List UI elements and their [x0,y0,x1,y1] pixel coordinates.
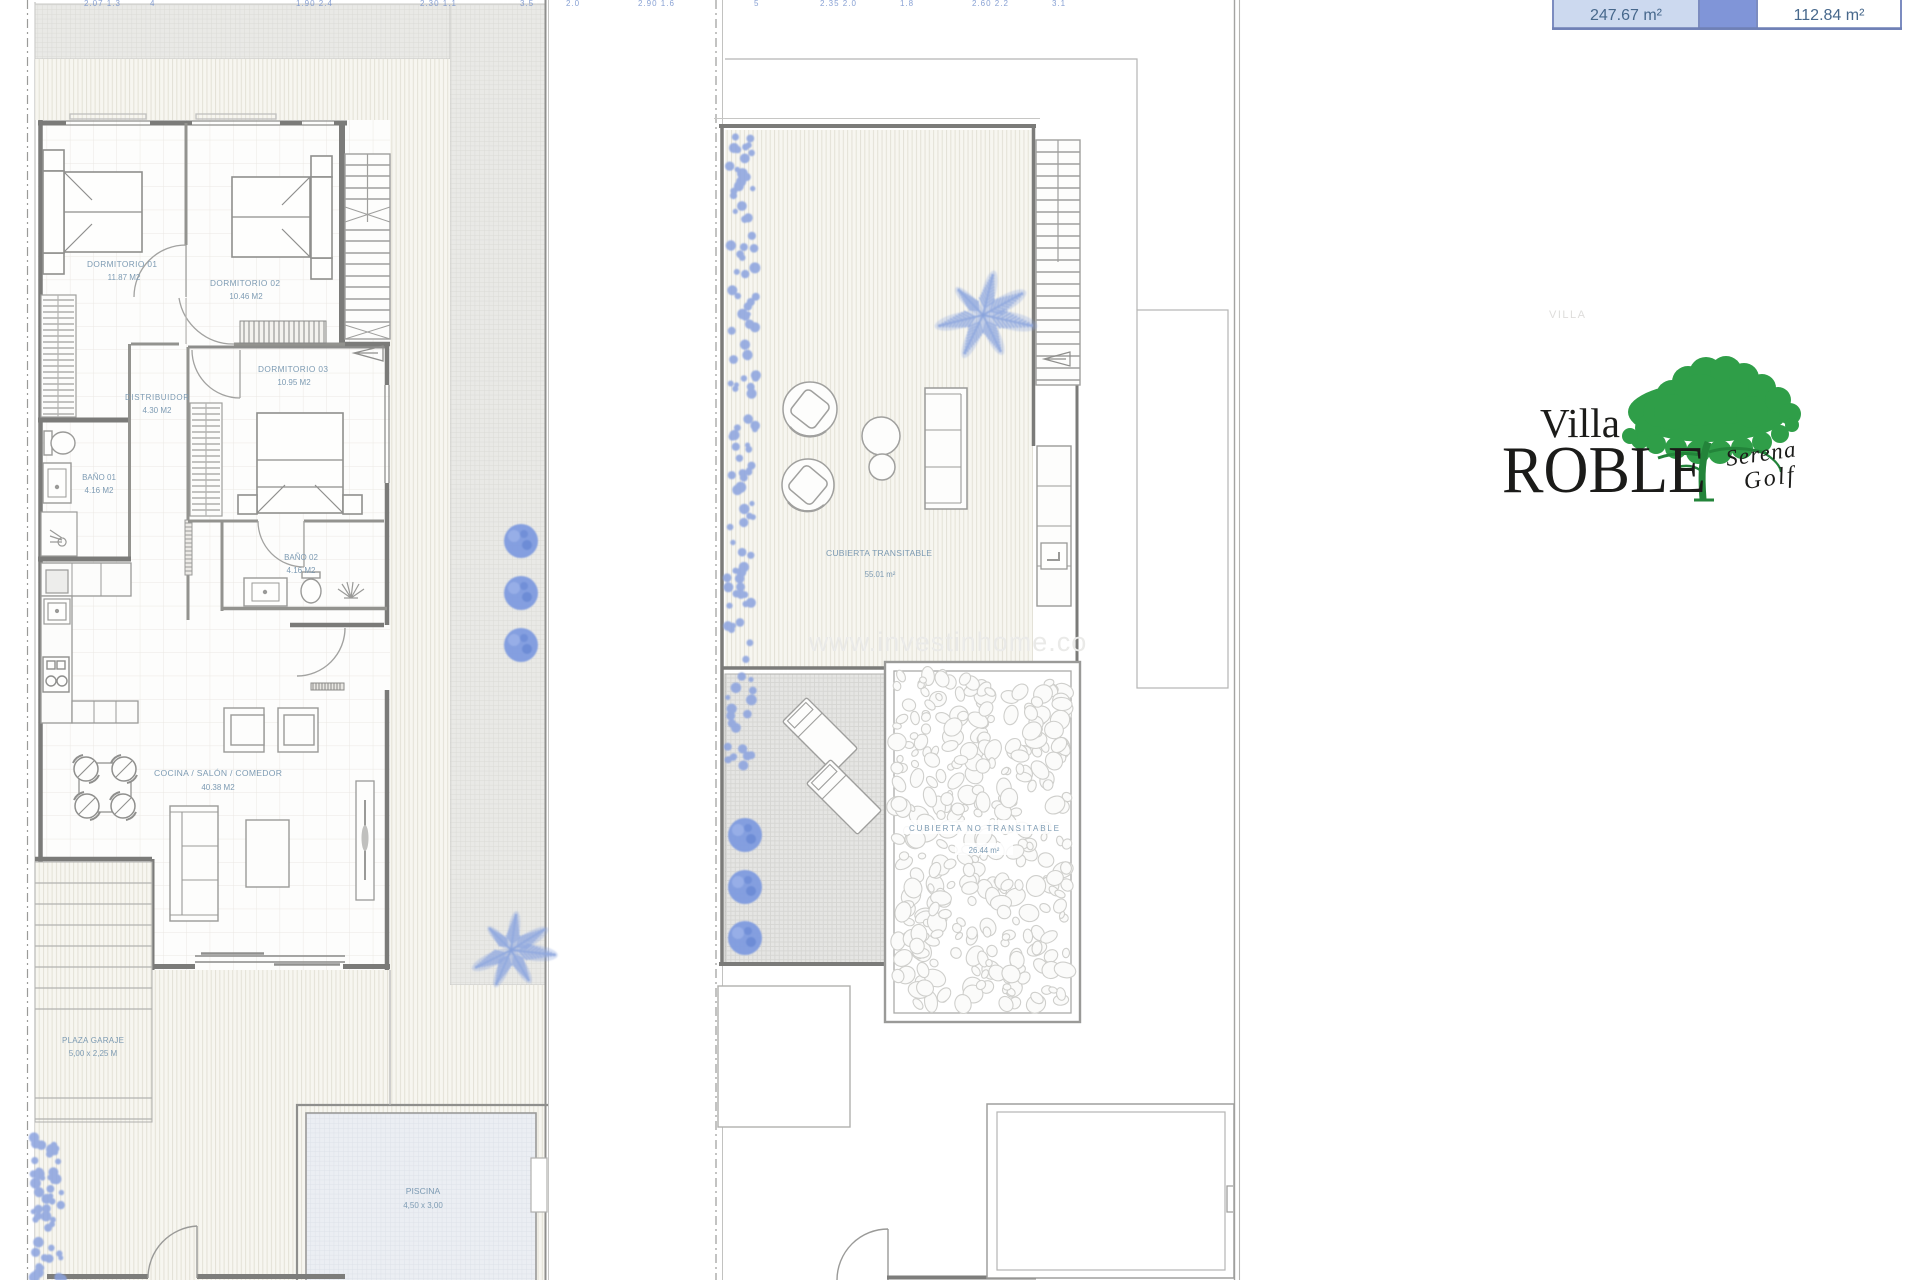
svg-text:1.8: 1.8 [900,0,914,8]
svg-text:2.30 1.1: 2.30 1.1 [420,0,457,8]
svg-text:3.5: 3.5 [520,0,534,8]
svg-text:1.90 2.4: 1.90 2.4 [296,0,333,8]
svg-text:40.38 M2: 40.38 M2 [201,783,235,792]
svg-text:2.90 1.6: 2.90 1.6 [638,0,675,8]
svg-text:11.87 M2: 11.87 M2 [108,273,141,282]
svg-text:2.0: 2.0 [566,0,580,8]
svg-text:DORMITORIO 02: DORMITORIO 02 [210,278,280,288]
svg-text:10.95 M2: 10.95 M2 [277,378,311,387]
svg-text:112.84 m²: 112.84 m² [1794,7,1866,24]
svg-text:DORMITORIO 03: DORMITORIO 03 [258,364,328,374]
svg-text:CUBIERTA NO TRANSITABLE: CUBIERTA NO TRANSITABLE [909,824,1059,833]
svg-text:2.35 2.0: 2.35 2.0 [820,0,857,8]
svg-text:26.44 m²: 26.44 m² [969,846,1000,855]
svg-text:ROBLE: ROBLE [1502,433,1706,507]
svg-text:4.16 M2: 4.16 M2 [287,566,316,575]
svg-text:10.46 M2: 10.46 M2 [229,292,263,301]
svg-text:4,50 x 3,00: 4,50 x 3,00 [403,1201,443,1210]
svg-text:4: 4 [150,0,155,8]
svg-text:247.67 m²: 247.67 m² [1590,7,1663,24]
svg-text:3.1: 3.1 [1052,0,1066,8]
svg-text:55.01 m²: 55.01 m² [865,570,896,579]
svg-text:COCINA / SALÓN / COMEDOR: COCINA / SALÓN / COMEDOR [154,768,282,778]
svg-text:BAÑO 01: BAÑO 01 [82,473,116,482]
svg-text:2.07 1.3: 2.07 1.3 [84,0,121,8]
svg-text:www.investinhome.co: www.investinhome.co [808,627,1088,657]
svg-text:BAÑO 02: BAÑO 02 [284,553,318,562]
svg-text:DISTRIBUIDOR: DISTRIBUIDOR [125,393,189,402]
svg-text:VILLA: VILLA [1549,309,1586,321]
svg-text:CUBIERTA TRANSITABLE: CUBIERTA TRANSITABLE [826,548,932,558]
svg-text:5,00 x 2,25 M: 5,00 x 2,25 M [69,1049,118,1058]
svg-text:5: 5 [754,0,759,8]
svg-text:DORMITORIO 01: DORMITORIO 01 [87,259,157,269]
svg-text:4.16 M2: 4.16 M2 [85,486,114,495]
svg-text:PLAZA GARAJE: PLAZA GARAJE [62,1036,124,1045]
svg-text:PISCINA: PISCINA [406,1186,441,1196]
svg-text:4.30 M2: 4.30 M2 [143,406,172,415]
svg-text:2.60 2.2: 2.60 2.2 [972,0,1009,8]
